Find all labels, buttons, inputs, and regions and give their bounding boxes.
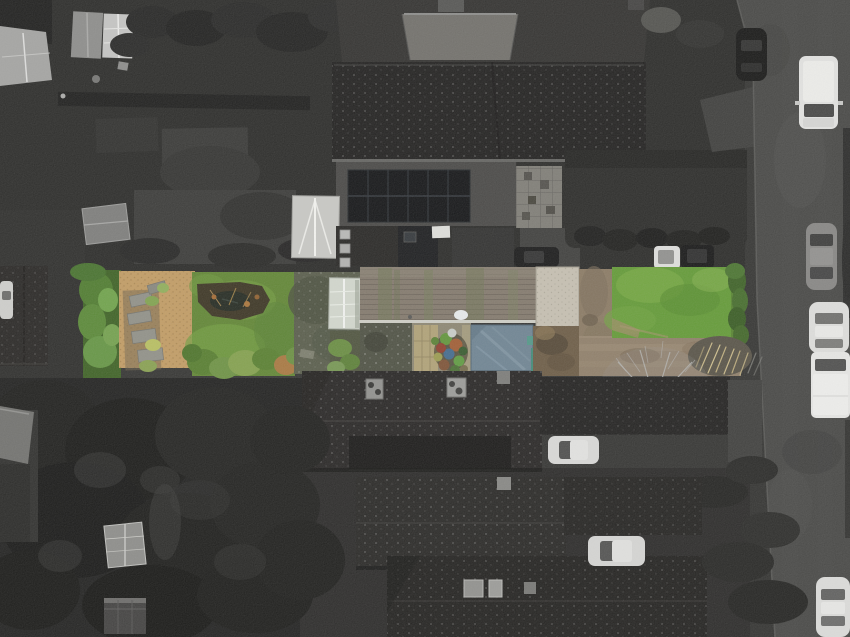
aerial-photo-canvas xyxy=(0,0,850,637)
film-grain xyxy=(0,0,850,637)
photo-layers xyxy=(0,0,850,637)
aerial-photograph xyxy=(0,0,850,637)
